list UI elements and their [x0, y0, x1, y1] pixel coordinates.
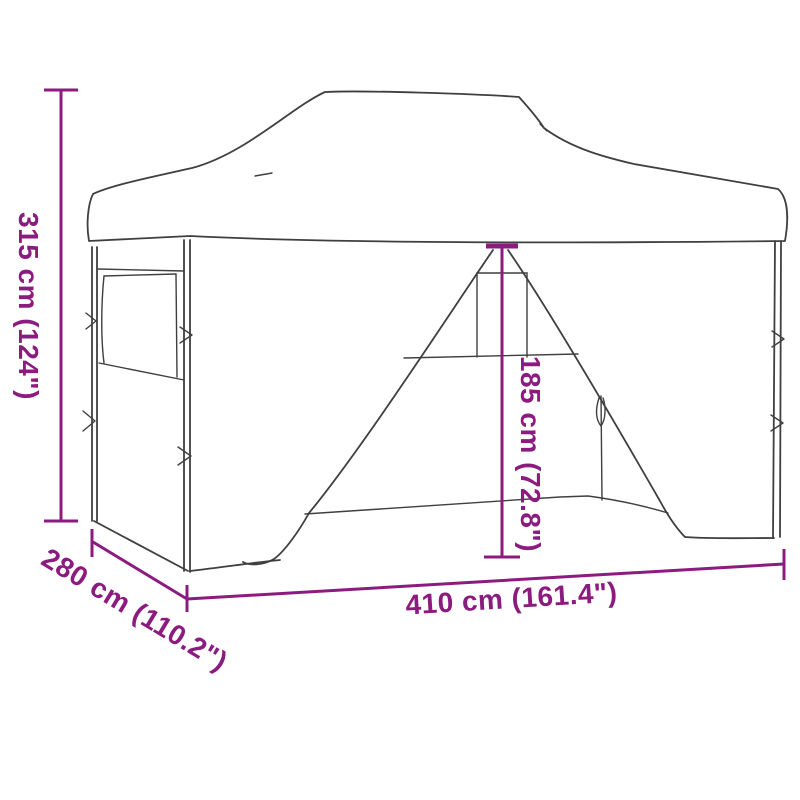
curtain-tie-edge — [601, 396, 602, 500]
back-ground-edge — [305, 496, 668, 514]
height-dimension-label: 315 cm (124") — [15, 211, 43, 401]
frame-pole-front-left — [184, 240, 190, 572]
frame-pole-left — [92, 247, 97, 521]
pole-tie-straps — [178, 327, 784, 465]
door-opening — [243, 250, 685, 564]
door-height-dimension-label: 185 cm (72.8") — [515, 354, 545, 554]
pole-tie-straps — [83, 313, 96, 431]
back-wall-seam — [404, 354, 578, 358]
tent-left-side-panel — [83, 247, 188, 571]
tent-canopy — [88, 91, 788, 242]
door-curtain-left — [243, 250, 493, 564]
frame-pole-front-right — [773, 241, 781, 538]
side-window — [99, 274, 184, 380]
height-dimension-line — [44, 90, 78, 521]
ground-lines — [190, 537, 774, 571]
product-dimension-diagram: 315 cm (124") 185 cm (72.8") 280 cm (110… — [0, 0, 800, 800]
left-wall-bottom-edge — [94, 521, 188, 571]
side-panel-top-seam — [97, 269, 184, 271]
tent-line-drawing — [0, 0, 800, 800]
